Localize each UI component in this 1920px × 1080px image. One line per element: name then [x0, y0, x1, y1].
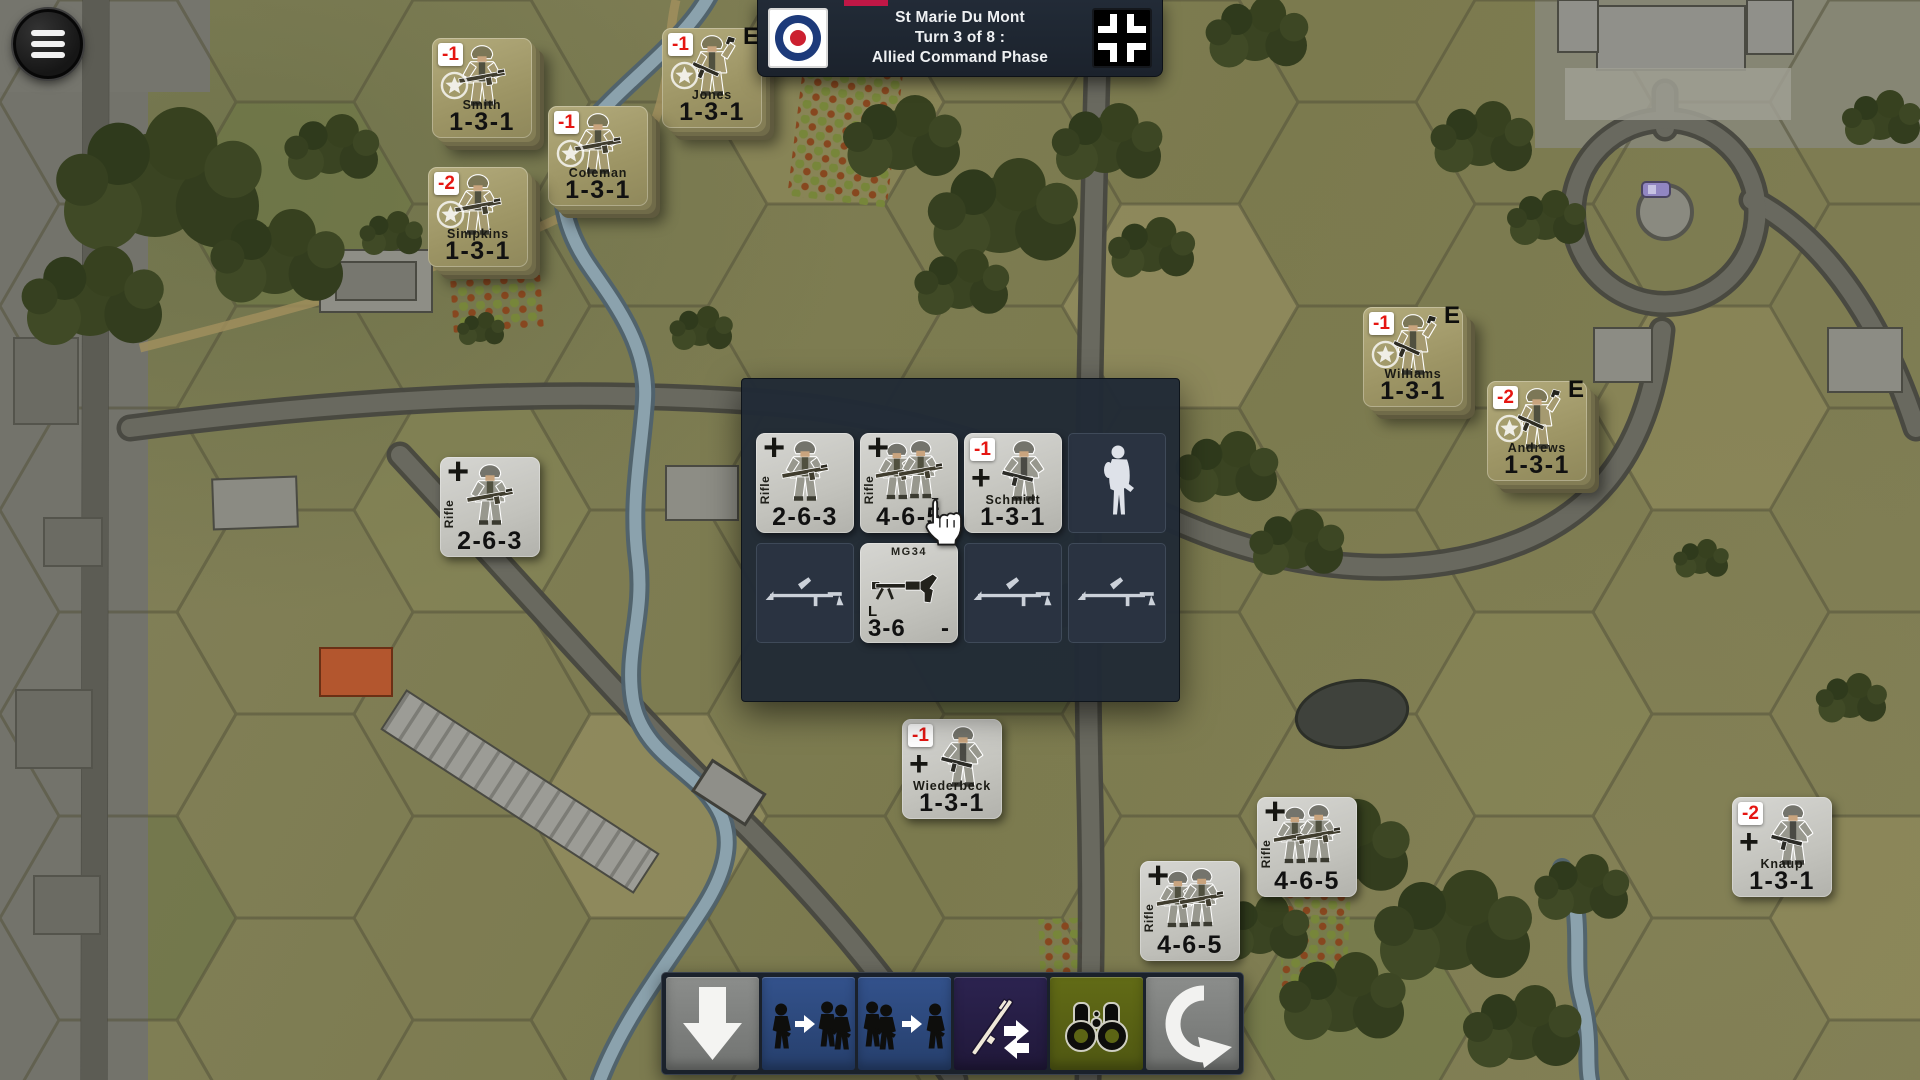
unit-counter-rifle-465-a[interactable]: + Rifle 4-6-5 [1257, 797, 1357, 897]
allied-star-icon [436, 200, 465, 229]
banner-text: St Marie Du Mont Turn 3 of 8 : Allied Co… [828, 8, 1092, 68]
mg34-art [868, 563, 950, 609]
action-toolbar [661, 972, 1244, 1075]
weapon-factor: 3-6 [868, 615, 906, 643]
down-arrow-icon [666, 979, 759, 1068]
move-down-button[interactable] [666, 977, 759, 1070]
german-cross-marker: + [867, 429, 889, 467]
german-cross-icon [1092, 8, 1152, 68]
join-units-button[interactable] [762, 977, 855, 1070]
german-cross-marker: + [971, 461, 991, 495]
end-phase-button[interactable] [1146, 977, 1239, 1070]
status-badge: -2 [1738, 802, 1763, 825]
unit-stats: 1-3-1 [432, 108, 532, 137]
status-badge: -1 [1369, 312, 1394, 335]
unit-counter-jones[interactable]: -1 E Jones 1-3-1 [662, 28, 762, 128]
german-cross-marker: + [763, 429, 785, 467]
panel-counter-mg34[interactable]: MG34 L 3-6 - [860, 543, 958, 643]
officer-silhouette-icon [1093, 443, 1141, 523]
allied-star-icon [556, 139, 585, 168]
unit-counter-wiederbeck[interactable]: -1 + Wiederbeck 1-3-1 [902, 719, 1002, 819]
unit-counter-rifle-465-b[interactable]: + Rifle 4-6-5 [1140, 861, 1240, 961]
unit-stats: 1-3-1 [902, 789, 1002, 818]
elite-marker: E [1568, 376, 1584, 404]
machinegun-silhouette-icon [1075, 571, 1159, 615]
status-badge: -2 [434, 172, 459, 195]
unit-counter-williams[interactable]: -1 E Williams 1-3-1 [1363, 307, 1463, 407]
allied-star-icon [670, 61, 699, 90]
split-units-button[interactable] [858, 977, 951, 1070]
scenario-title: St Marie Du Mont [895, 8, 1025, 28]
hamburger-menu-icon [31, 30, 65, 36]
german-cross-marker: + [1147, 857, 1169, 895]
allied-star-icon [1371, 340, 1400, 369]
unit-stats: 1-3-1 [428, 237, 528, 266]
unit-stats: 4-6-5 [1140, 931, 1240, 960]
unit-stats: 1-3-1 [964, 503, 1062, 532]
unit-stats: 1-3-1 [662, 98, 762, 127]
unit-stats: 1-3-1 [1732, 867, 1832, 896]
binoculars-icon [1050, 979, 1143, 1068]
unit-stats: 2-6-3 [440, 527, 540, 556]
german-cross-marker: + [1739, 825, 1759, 859]
soldier-merge-icon [762, 979, 855, 1068]
turn-indicator: Turn 3 of 8 : [915, 28, 1005, 48]
allied-star-icon [440, 71, 469, 100]
allied-star-icon [1495, 414, 1524, 443]
status-badge: -1 [970, 438, 995, 461]
unit-counter-andrews[interactable]: -2 E Andrews 1-3-1 [1487, 381, 1587, 481]
empty-leader-slot[interactable] [1068, 433, 1166, 533]
phase-progress-strip [844, 0, 888, 6]
hamburger-menu-button[interactable] [13, 9, 83, 79]
german-cross-marker: + [909, 747, 929, 781]
german-cross-marker: + [1264, 793, 1286, 831]
unit-counter-knaup[interactable]: -2 + Knaup 1-3-1 [1732, 797, 1832, 897]
status-badge: -1 [668, 33, 693, 56]
unit-stats: 2-6-3 [756, 503, 854, 532]
german-cross-marker: + [447, 453, 469, 491]
unit-stats: 1-3-1 [548, 176, 648, 205]
elite-marker: E [1444, 302, 1460, 330]
unit-stats: 4-6-5 [1257, 867, 1357, 896]
hamburger-menu-icon [31, 41, 65, 47]
soldier-split-icon [858, 979, 951, 1068]
spot-recon-button[interactable] [1050, 977, 1143, 1070]
unit-counter-simpkins[interactable]: -2 Simpkins 1-3-1 [428, 167, 528, 267]
vehicle [1642, 182, 1670, 197]
phase-indicator: Allied Command Phase [872, 48, 1048, 68]
empty-weapon-slot-3[interactable] [1068, 543, 1166, 643]
panel-counter-schmidt[interactable]: -1 + Schmidt 1-3-1 [964, 433, 1062, 533]
status-badge: -1 [438, 43, 463, 66]
undo-arrow-icon [1146, 979, 1239, 1068]
unit-counter-coleman[interactable]: -1 Coleman 1-3-1 [548, 106, 648, 206]
machinegun-silhouette-icon [763, 571, 847, 615]
weapon-status: - [941, 615, 949, 643]
machinegun-silhouette-icon [971, 571, 1055, 615]
allied-roundel-icon [768, 8, 828, 68]
unit-stats: 1-3-1 [1363, 377, 1463, 406]
turn-status-banner: St Marie Du Mont Turn 3 of 8 : Allied Co… [757, 0, 1163, 77]
unit-counter-smith[interactable]: -1 Smith 1-3-1 [432, 38, 532, 138]
status-badge: -1 [908, 724, 933, 747]
rifle-swap-icon [954, 979, 1047, 1068]
status-badge: -1 [554, 111, 579, 134]
transfer-weapons-button[interactable] [954, 977, 1047, 1070]
status-badge: -2 [1493, 386, 1518, 409]
empty-weapon-slot-1[interactable] [756, 543, 854, 643]
hand-cursor [918, 498, 964, 548]
empty-weapon-slot-2[interactable] [964, 543, 1062, 643]
unit-stats: 1-3-1 [1487, 451, 1587, 480]
unit-counter-rifle-263[interactable]: + Rifle 2-6-3 [440, 457, 540, 557]
panel-counter-rifle-263[interactable]: + Rifle 2-6-3 [756, 433, 854, 533]
hamburger-menu-icon [31, 52, 65, 58]
